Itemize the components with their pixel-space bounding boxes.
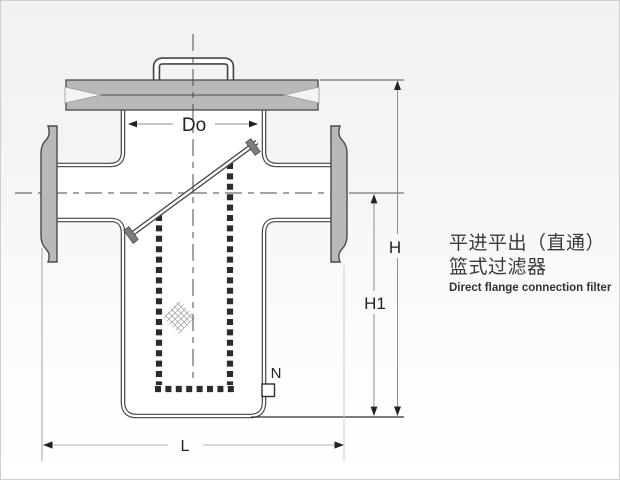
drawing-canvas: Do H H1 L N 平进平出（直通） 篮式过滤器 Direct flange…: [0, 0, 620, 480]
do-label: Do: [182, 115, 206, 136]
dimension-l: L: [43, 438, 344, 455]
l-label: L: [181, 438, 190, 455]
h-label: H: [389, 238, 401, 257]
h-arrow-bottom: [394, 407, 401, 417]
product-title-zh-line1: 平进平出（直通）: [449, 232, 605, 254]
h1-label: H1: [364, 294, 386, 313]
h1-arrow-bottom: [371, 407, 378, 416]
h1-arrow-top: [371, 194, 378, 203]
dimension-h: H: [389, 81, 401, 417]
filter-technical-drawing: Do H H1 L N 平进平出（直通） 篮式过滤器 Direct flange…: [1, 1, 620, 480]
h-arrow-top: [394, 81, 401, 91]
drain-port-square: [262, 384, 275, 397]
l-arrow-right: [335, 441, 345, 448]
l-arrow-left: [43, 441, 53, 448]
n-label: N: [271, 365, 282, 382]
product-title-zh-line2: 篮式过滤器: [449, 256, 547, 278]
top-cover-assembly: [65, 80, 319, 110]
product-subtitle-en: Direct flange connection filter: [449, 282, 612, 294]
product-title-block: 平进平出（直通） 篮式过滤器 Direct flange connection …: [449, 232, 612, 294]
right-pipe-flange: [331, 126, 347, 262]
left-pipe-flange: [41, 126, 57, 262]
dimension-h1: H1: [364, 194, 386, 416]
